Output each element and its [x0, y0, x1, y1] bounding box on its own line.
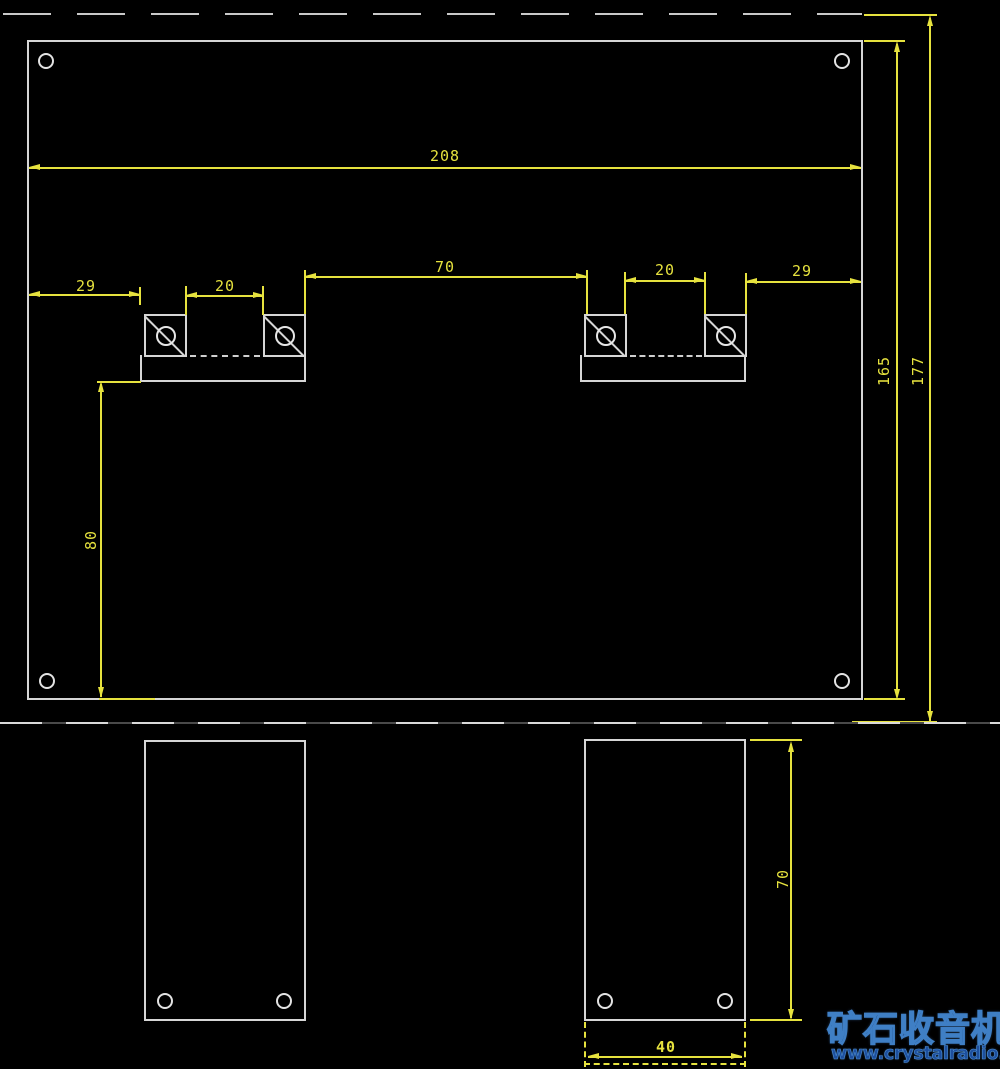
- dim-arrow: [305, 273, 316, 279]
- mount-hole-2: [275, 326, 295, 346]
- foot-right-outline: [584, 739, 746, 1021]
- dim-165-line: [896, 44, 898, 696]
- dim-arrow: [894, 41, 900, 52]
- extension-line: [750, 739, 802, 741]
- dim-arrow: [850, 164, 861, 170]
- extension-line: [745, 273, 747, 314]
- mount-hole-4: [716, 326, 736, 346]
- extension-line: [304, 270, 306, 314]
- extension-line: [99, 698, 155, 700]
- dim-left-20-label: 20: [195, 277, 255, 295]
- mount-hole-1: [156, 326, 176, 346]
- extension-line: [864, 14, 937, 16]
- foot-right-hole-2: [717, 993, 733, 1009]
- dim-80-line: [100, 384, 102, 697]
- top-centerline: [3, 13, 862, 15]
- dim-40-label: 40: [636, 1038, 696, 1056]
- extension-line-dashed: [584, 1022, 586, 1067]
- dim-arrow: [98, 687, 104, 698]
- mount-square-4: [704, 314, 747, 357]
- extension-line: [97, 381, 141, 383]
- foot-left-outline: [144, 740, 306, 1021]
- dim-arrow: [588, 1053, 599, 1059]
- bracket-base-right: [580, 355, 746, 382]
- dim-80-label: 80: [82, 530, 100, 550]
- watermark-url: www.crystalradio.cn: [831, 1044, 1000, 1064]
- foot-right-hole-1: [597, 993, 613, 1009]
- dim-center-70-line: [305, 276, 587, 278]
- dim-165-label: 165: [875, 356, 893, 386]
- dim-right-29-line: [746, 281, 861, 283]
- mount-square-3: [584, 314, 627, 357]
- extension-line: [139, 287, 141, 305]
- dim-panel-width-line: [29, 167, 861, 169]
- dim-arrow: [29, 164, 40, 170]
- extension-line: [262, 286, 264, 315]
- bracket-base-right-hidden-edge: [630, 355, 702, 357]
- dim-40-dashed-line: [584, 1063, 746, 1065]
- dim-arrow: [850, 278, 861, 284]
- mount-square-1: [144, 314, 187, 357]
- cad-drawing-canvas: 208 29 20 70 20 2: [0, 0, 1000, 1069]
- dim-foot-70-label: 70: [774, 869, 792, 889]
- separator-centerline: [0, 722, 1000, 724]
- corner-hole-top-right: [834, 53, 850, 69]
- dim-arrow: [731, 1053, 742, 1059]
- dim-right-20-label: 20: [635, 261, 695, 279]
- foot-left-hole-1: [157, 993, 173, 1009]
- corner-hole-bottom-left: [39, 673, 55, 689]
- dim-panel-width-label: 208: [405, 147, 485, 165]
- extension-line: [704, 272, 706, 314]
- extension-line: [185, 286, 187, 315]
- dim-arrow: [927, 15, 933, 26]
- mount-hole-3: [596, 326, 616, 346]
- extension-line: [624, 272, 626, 314]
- extension-line: [864, 40, 905, 42]
- dim-center-70-label: 70: [415, 258, 475, 276]
- dim-40-line: [588, 1056, 742, 1058]
- corner-hole-bottom-right: [834, 673, 850, 689]
- dim-left-29-label: 29: [56, 277, 116, 295]
- dim-177-line: [929, 18, 931, 721]
- dim-right-20-line: [625, 280, 705, 282]
- extension-line: [586, 270, 588, 314]
- dim-arrow: [788, 741, 794, 752]
- extension-line: [750, 1019, 802, 1021]
- corner-hole-top-left: [38, 53, 54, 69]
- dim-177-label: 177: [909, 356, 927, 386]
- dim-arrow: [29, 291, 40, 297]
- bracket-base-left-hidden-edge: [190, 355, 260, 357]
- extension-line: [864, 698, 905, 700]
- extension-line-dashed: [744, 1022, 746, 1067]
- mount-square-2: [263, 314, 306, 357]
- dim-arrow: [746, 278, 757, 284]
- dim-right-29-label: 29: [772, 262, 832, 280]
- foot-left-hole-2: [276, 993, 292, 1009]
- bracket-base-left: [140, 355, 306, 382]
